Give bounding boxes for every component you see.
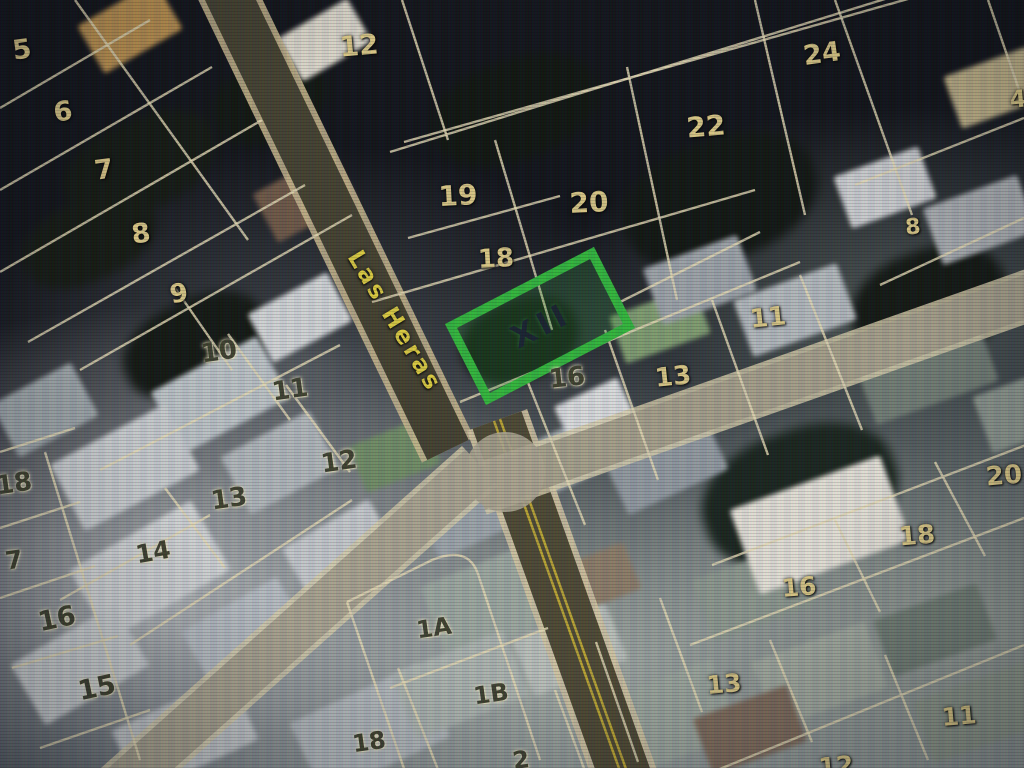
parcel-label: 11 xyxy=(749,303,788,333)
parcel-label: 7 xyxy=(4,546,25,573)
parcel-label: 12 xyxy=(319,447,358,478)
parcel-label: 6 xyxy=(52,97,74,126)
parcel-label: 1B xyxy=(472,680,510,709)
parcel-label: 18 xyxy=(0,469,34,500)
parcel-label: 15 xyxy=(76,671,118,705)
parcel-label: 8 xyxy=(130,219,152,248)
parcel-label: 19 xyxy=(438,181,478,211)
parcel-label: 13 xyxy=(654,362,693,392)
parcel-label: 8 xyxy=(904,216,921,239)
parcel-label: 22 xyxy=(685,111,726,142)
parcel-label: 14 xyxy=(134,537,173,568)
parcel-label: 16 xyxy=(548,363,587,393)
parcel-label: 1A xyxy=(415,614,453,643)
parcel-label: 4 xyxy=(1009,86,1024,111)
parcel-label: 13 xyxy=(209,484,248,515)
parcel-label: 12 xyxy=(818,752,855,768)
parcel-label: 18 xyxy=(477,245,514,273)
parcel-label: 16 xyxy=(781,573,818,601)
parcel-label: 20 xyxy=(985,461,1023,490)
parcel-labels-layer: 5678121920182224849101112131418716151613… xyxy=(0,0,1024,768)
parcel-label: 10 xyxy=(199,337,238,368)
parcel-label: 12 xyxy=(338,30,379,61)
parcel-label: 20 xyxy=(569,188,609,218)
parcel-label: 11 xyxy=(941,702,978,730)
parcel-label: 7 xyxy=(93,155,115,184)
parcel-label: 13 xyxy=(706,670,743,698)
satellite-map[interactable]: 5678121920182224849101112131418716151613… xyxy=(0,0,1024,768)
parcel-label: 2 xyxy=(511,747,531,768)
parcel-label: 5 xyxy=(11,35,33,64)
parcel-label: 16 xyxy=(36,602,78,636)
parcel-label: 24 xyxy=(802,38,843,70)
parcel-label: 18 xyxy=(351,728,387,756)
parcel-label: 18 xyxy=(898,521,936,550)
parcel-label: 11 xyxy=(270,375,309,406)
parcel-label: 9 xyxy=(168,280,190,309)
